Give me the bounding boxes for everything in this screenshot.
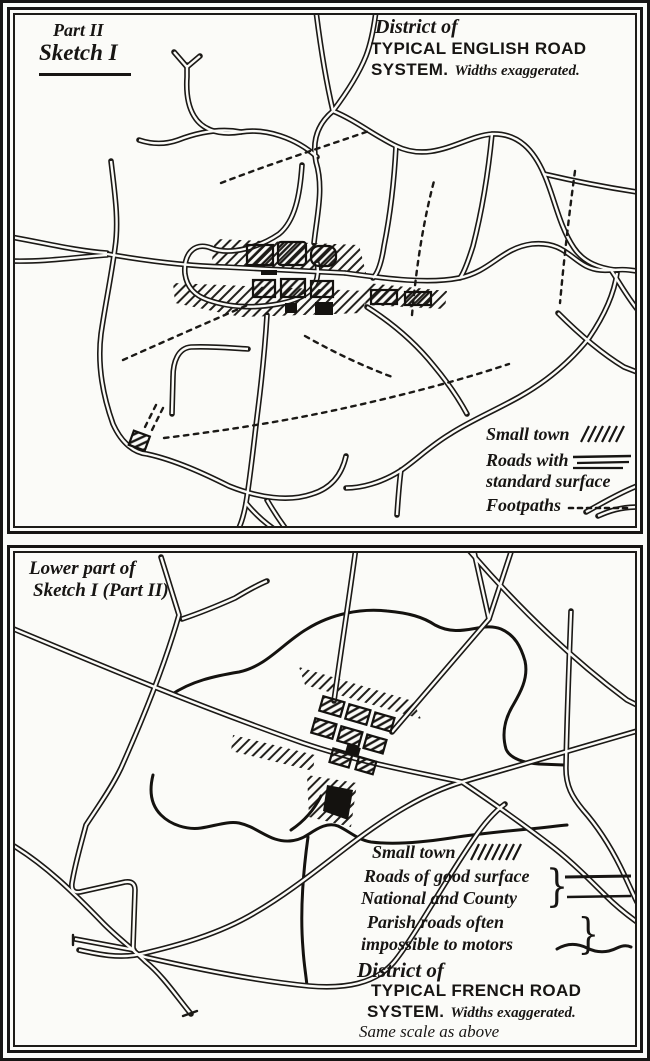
french-title-note: Widths exaggerated. bbox=[450, 1005, 575, 1021]
french-legend-parish-1: Parish roads often bbox=[367, 913, 504, 932]
french-map-frame: Lower part of Sketch I (Part II) Small t… bbox=[13, 551, 637, 1047]
french-caption-1: Lower part of bbox=[29, 559, 136, 579]
french-title-system: SYSTEM. bbox=[367, 1002, 444, 1021]
french-legend-roads-1: Roads of good surface bbox=[364, 867, 530, 886]
english-map-frame: Part II Sketch I District of TYPICAL ENG… bbox=[13, 13, 637, 528]
legend-roads-label-1: Roads with bbox=[486, 451, 569, 470]
french-legend-parish-2: impossible to motors bbox=[361, 935, 513, 954]
french-legend-roads-2: National and County bbox=[361, 889, 517, 908]
sketch-label: Sketch I bbox=[39, 41, 118, 65]
english-title-system: SYSTEM. bbox=[371, 60, 448, 79]
english-title-system-row: SYSTEM.Widths exaggerated. bbox=[371, 61, 580, 80]
footpath-dotted-icon bbox=[567, 503, 633, 513]
french-caption-2: Sketch I (Part II) bbox=[33, 581, 169, 601]
small-town-hatch-icon bbox=[577, 423, 629, 445]
small-town-hatch-icon bbox=[467, 841, 529, 863]
national-county-road-icon bbox=[563, 871, 633, 901]
english-title-caps: TYPICAL ENGLISH ROAD bbox=[371, 40, 586, 58]
french-title-district: District of bbox=[357, 959, 444, 981]
book-page: Part II Sketch I District of TYPICAL ENG… bbox=[0, 0, 650, 1061]
french-legend-small-town: Small town bbox=[372, 843, 456, 862]
french-title-system-row: SYSTEM.Widths exaggerated. bbox=[367, 1003, 576, 1022]
legend-footpaths-label: Footpaths bbox=[486, 496, 561, 515]
standard-road-lines-icon bbox=[571, 453, 633, 471]
legend-roads-label-2: standard surface bbox=[486, 472, 611, 491]
part-label: Part II bbox=[53, 21, 104, 40]
english-title-note: Widths exaggerated. bbox=[454, 63, 579, 79]
french-map-drawing bbox=[15, 553, 635, 1045]
french-small-town-hatch bbox=[231, 667, 421, 827]
english-title-district: District of bbox=[375, 17, 458, 38]
legend-small-town-label: Small town bbox=[486, 425, 570, 444]
french-title-note2: Same scale as above bbox=[359, 1023, 499, 1041]
english-map-panel: Part II Sketch I District of TYPICAL ENG… bbox=[7, 7, 643, 534]
french-title-caps: TYPICAL FRENCH ROAD bbox=[371, 982, 581, 1000]
french-map-panel: Lower part of Sketch I (Part II) Small t… bbox=[7, 545, 643, 1053]
sketch-underline bbox=[39, 73, 131, 76]
parish-road-wavy-icon bbox=[555, 939, 633, 957]
parish-roads-wavy bbox=[151, 610, 567, 986]
